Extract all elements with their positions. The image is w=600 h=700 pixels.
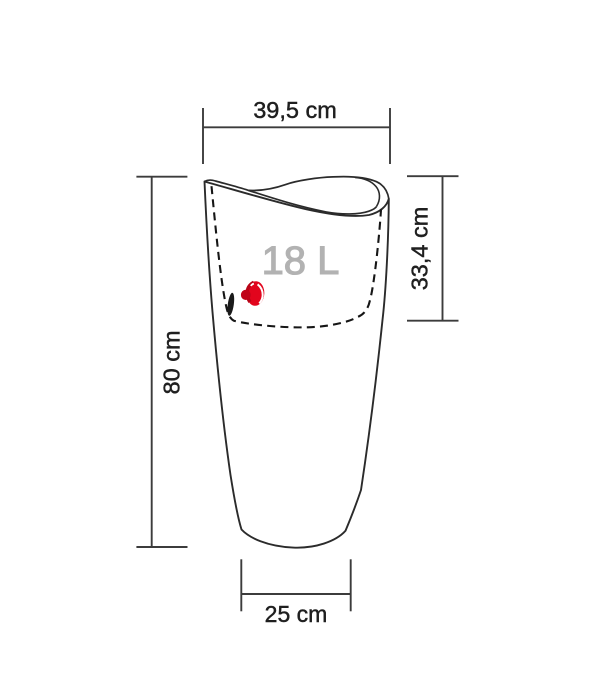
svg-text:25 cm: 25 cm: [265, 601, 328, 627]
svg-text:33,4 cm: 33,4 cm: [407, 207, 433, 291]
svg-text:80 cm: 80 cm: [159, 330, 185, 394]
svg-text:39,5 cm: 39,5 cm: [253, 97, 337, 123]
svg-text:18 L: 18 L: [262, 239, 340, 283]
